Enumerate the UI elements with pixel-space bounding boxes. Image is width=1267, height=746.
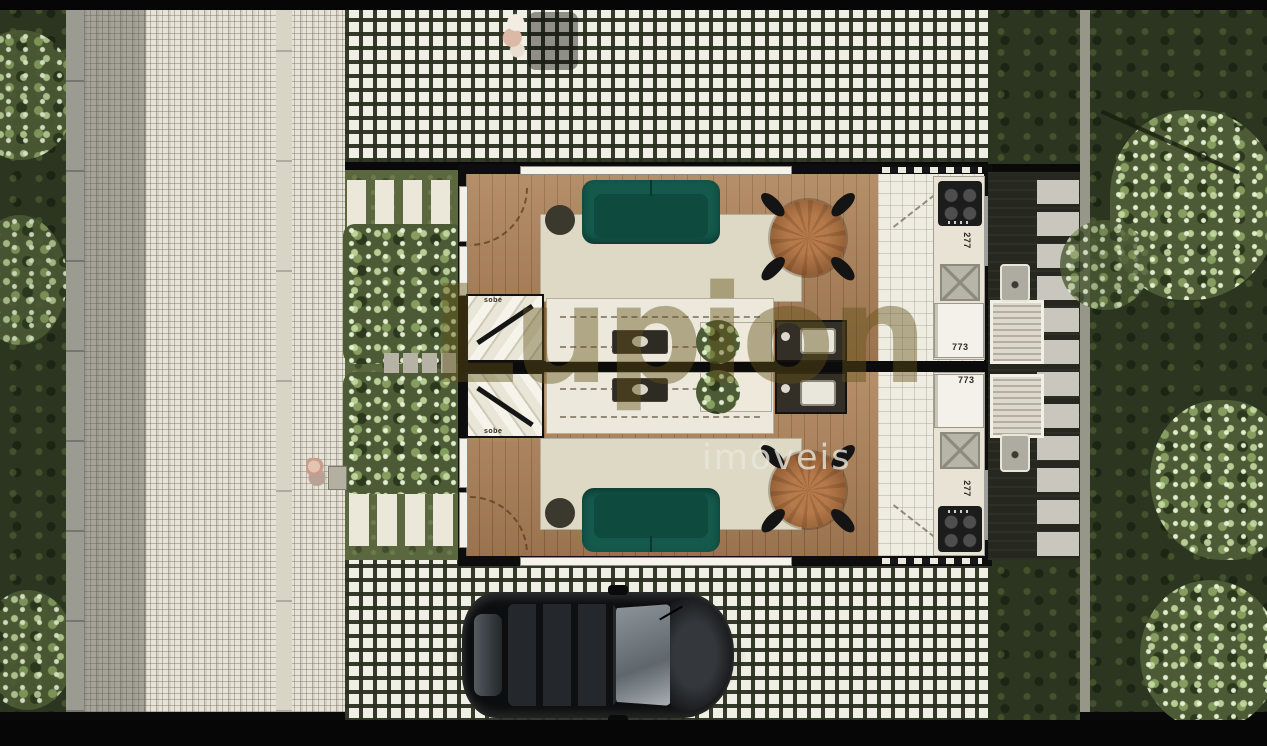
- tree-canopy-icon: [1060, 220, 1150, 310]
- barbecue-grill-upper: [990, 300, 1044, 364]
- cooktop-upper: [938, 181, 982, 226]
- window-bottom-kitchen: [882, 558, 982, 564]
- door-swing-upper: [470, 188, 528, 246]
- car-windshield: [616, 604, 672, 706]
- window-bottom: [520, 557, 792, 566]
- sofa-seat: [594, 194, 708, 238]
- side-table: [545, 498, 575, 528]
- window-top-kitchen: [882, 167, 982, 173]
- outdoor-sink-lower: [1000, 434, 1030, 472]
- watermark-brand-glow: Lupion: [430, 268, 924, 404]
- car-rear-glass: [474, 614, 502, 696]
- rear-lawn-bottom: [988, 560, 1080, 722]
- cooktop-knobs: [948, 510, 970, 513]
- window-left-upper: [459, 186, 468, 242]
- tree-canopy-icon: [1140, 580, 1267, 730]
- street-dark-lane: [84, 0, 146, 712]
- hall-guideline: [560, 416, 760, 418]
- counter-depth-label: 277: [962, 232, 971, 249]
- permeable-pavers-top: [345, 0, 988, 162]
- pedestrian-figure: [497, 10, 531, 60]
- counter-length-label: 773: [958, 376, 975, 385]
- car-mirror: [608, 585, 628, 595]
- watermark-subtitle: imóveis: [702, 438, 851, 478]
- kitchen-sink-upper: [940, 264, 980, 301]
- pedestrian-figure: [306, 458, 326, 486]
- letterbox-top: [0, 0, 1267, 10]
- pedestrian-shadow: [528, 12, 578, 70]
- sofa-seam: [650, 180, 652, 196]
- planter-box: [328, 466, 347, 490]
- rear-lawn-top: [988, 0, 1080, 164]
- site-plan-rendering: sobe 80 277 773 sobe 80 773 277: [0, 0, 1267, 746]
- stepping-slabs-bottom: [349, 488, 459, 546]
- sidewalk-concrete-strip: [276, 0, 292, 712]
- barbecue-grill-lower: [990, 374, 1044, 438]
- window-left-lower: [459, 492, 468, 548]
- car-top-view: [462, 592, 734, 718]
- property-fence: [1080, 0, 1090, 712]
- stair-direction-label: sobe: [484, 428, 502, 435]
- stepping-slabs-top: [347, 180, 459, 227]
- sofa-seam: [650, 536, 652, 552]
- car-cabin-seats: [508, 604, 616, 706]
- outdoor-sink-upper: [1000, 264, 1030, 302]
- window-top: [520, 166, 792, 175]
- window-left-lower2: [459, 438, 468, 488]
- door-swing-lower: [470, 492, 528, 550]
- kitchen-sink-lower: [940, 432, 980, 469]
- counter-length-label: 773: [952, 343, 969, 352]
- car-hood: [670, 598, 732, 712]
- cooktop-knobs: [948, 221, 970, 224]
- side-table: [545, 205, 575, 235]
- letterbox-bottom: [0, 720, 1267, 746]
- sofa-seat: [594, 494, 708, 538]
- counter-depth-label: 277: [962, 480, 971, 497]
- curb: [66, 0, 84, 712]
